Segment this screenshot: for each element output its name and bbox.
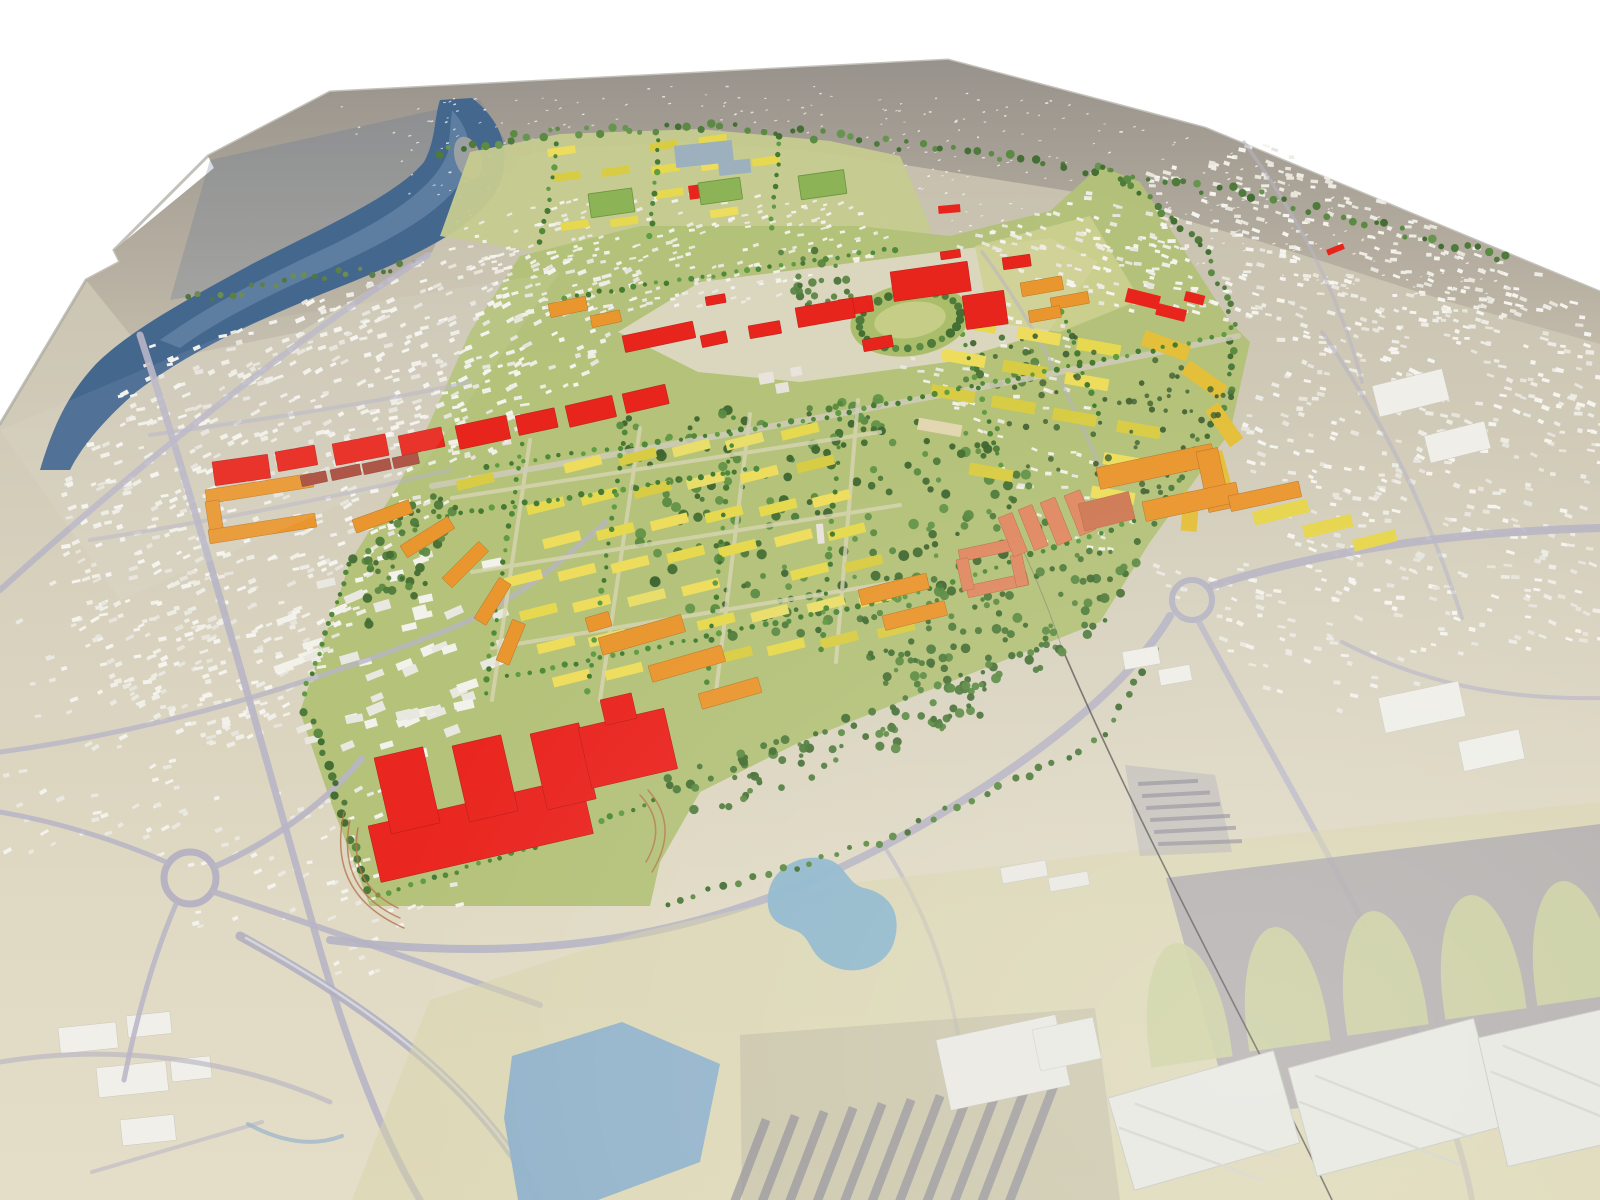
- haze-bottom-right: [0, 0, 1600, 1200]
- architectural-model-photo: [0, 0, 1600, 1200]
- model-photo-svg: [0, 0, 1600, 1200]
- photo-stage: [0, 0, 1600, 1200]
